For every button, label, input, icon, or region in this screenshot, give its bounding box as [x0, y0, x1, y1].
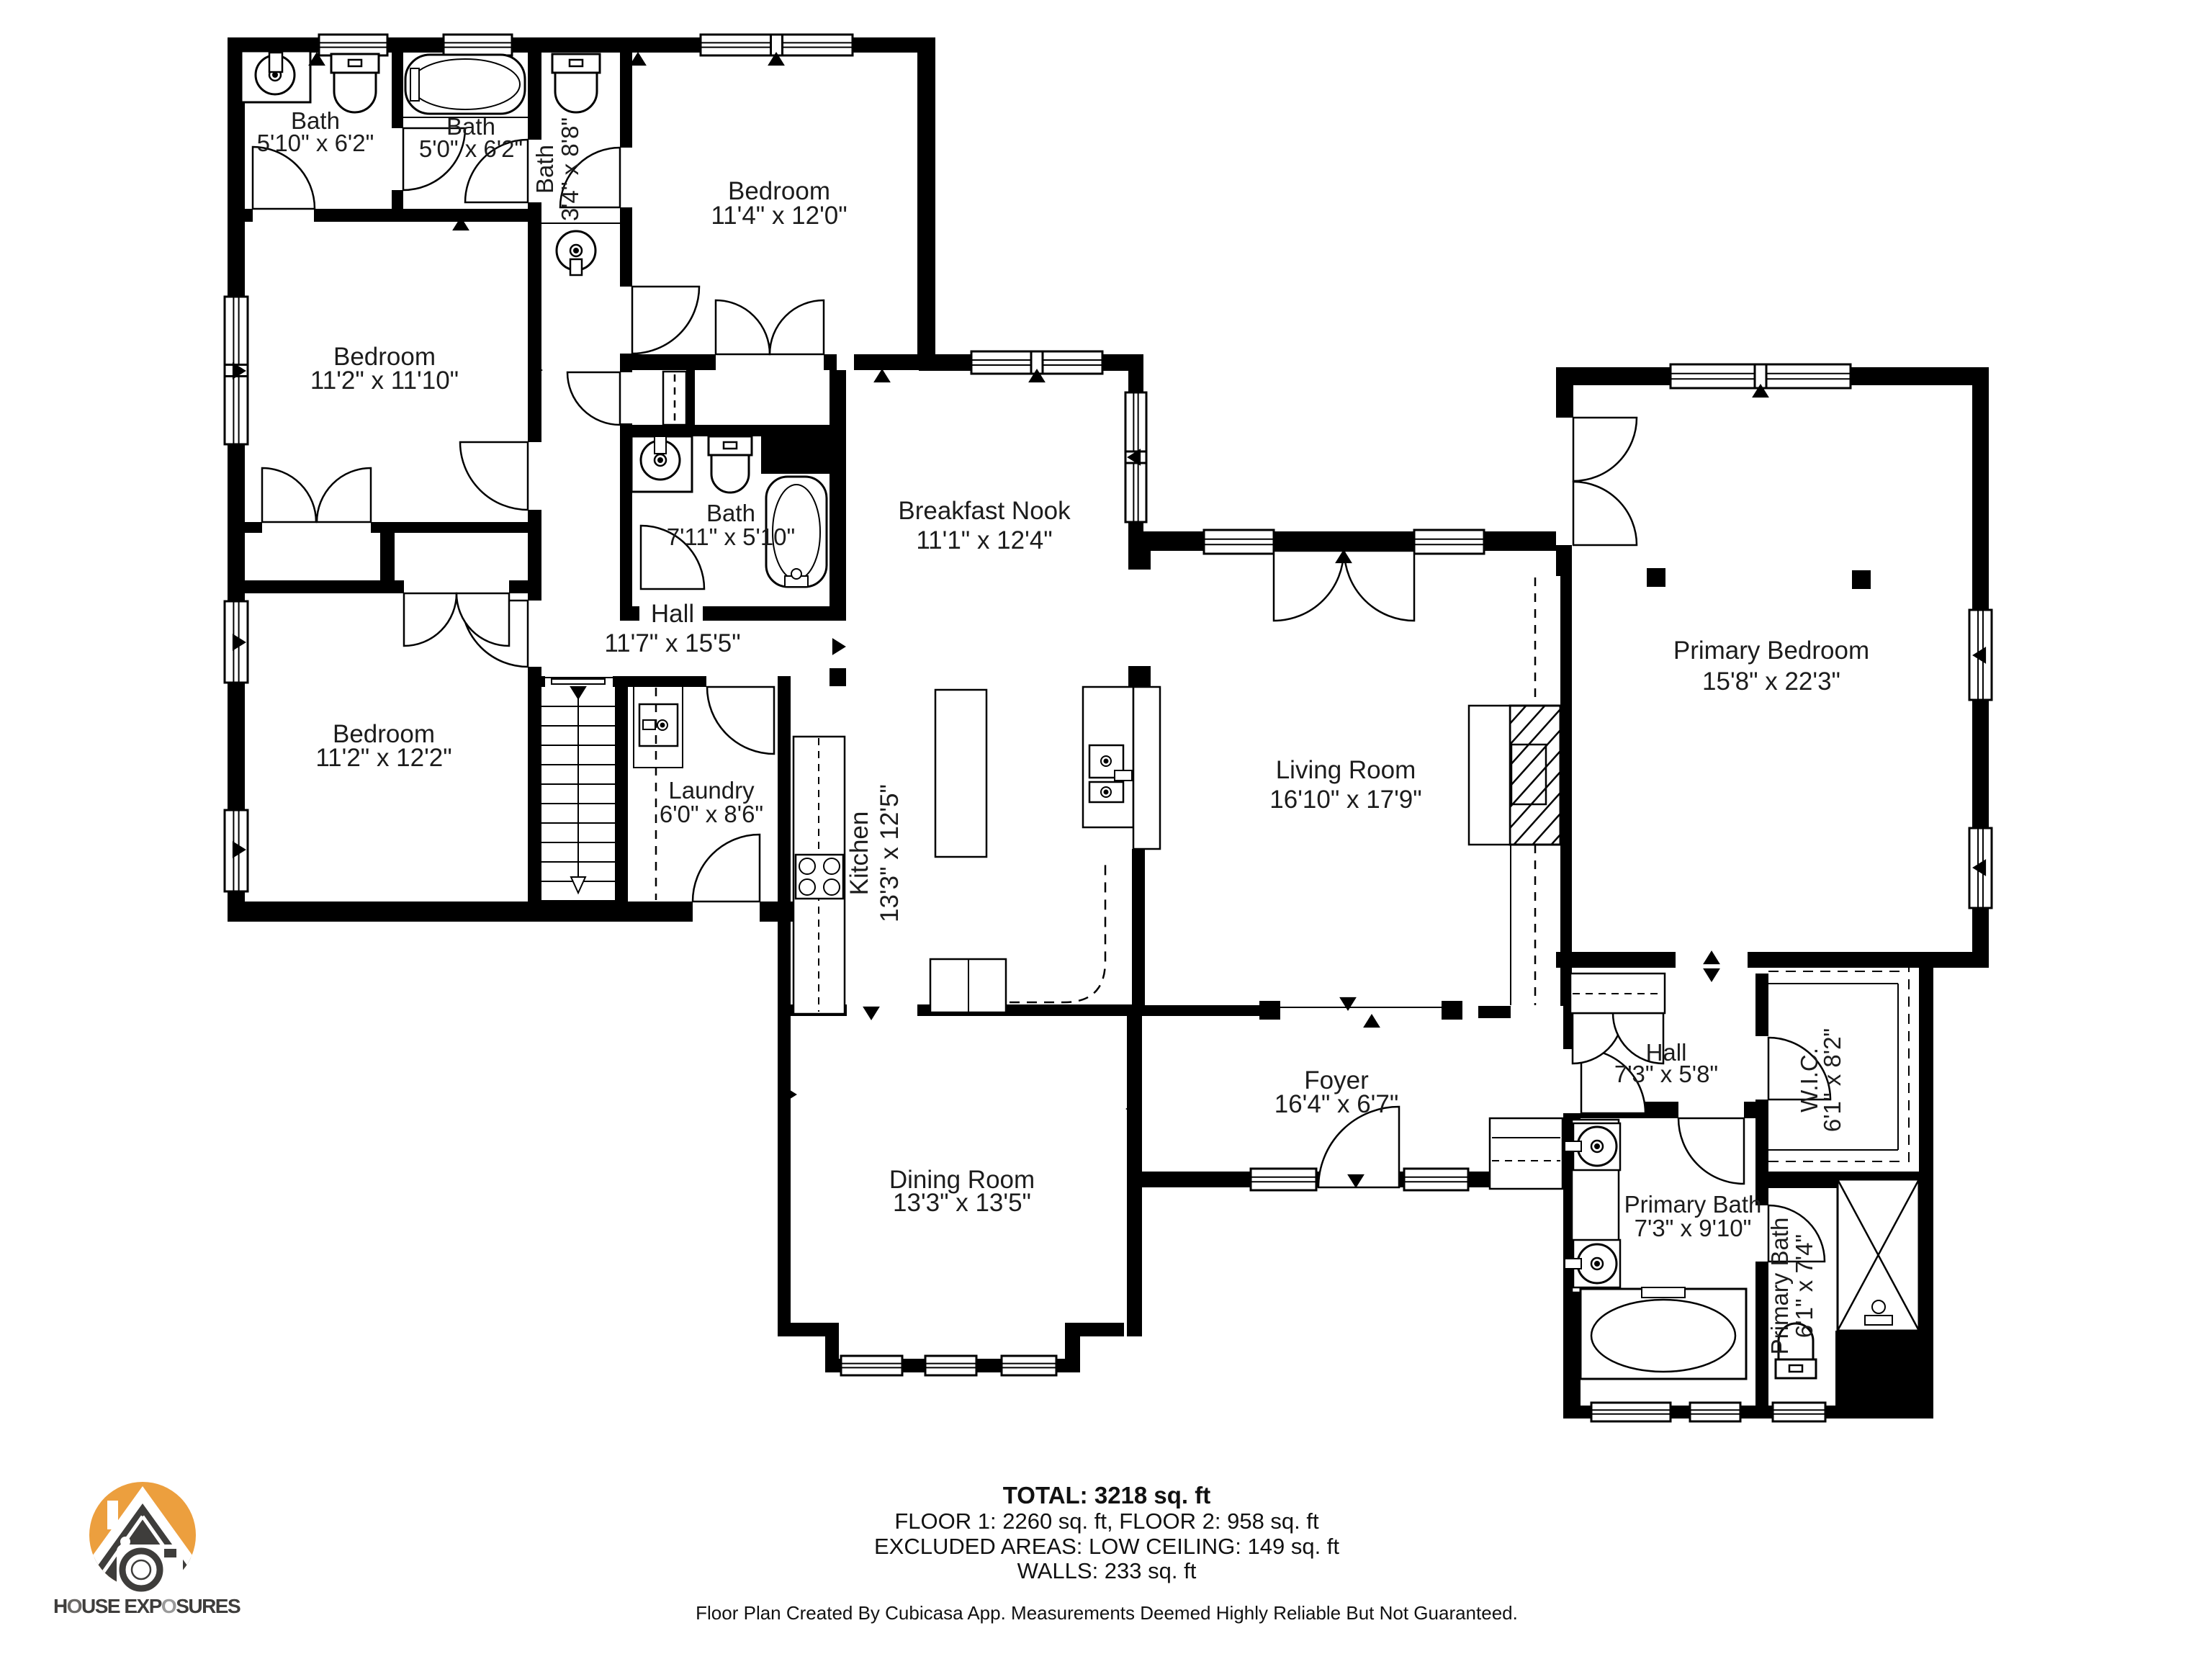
svg-text:Primary Bath: Primary Bath — [1624, 1191, 1762, 1218]
svg-text:Breakfast Nook: Breakfast Nook — [898, 497, 1071, 525]
svg-text:FLOOR 1: 2260 sq. ft, FLOOR 2:: FLOOR 1: 2260 sq. ft, FLOOR 2: 958 sq. f… — [894, 1509, 1319, 1534]
svg-text:11'4" x 12'0": 11'4" x 12'0" — [711, 202, 847, 230]
svg-text:13'3" x 13'5": 13'3" x 13'5" — [893, 1189, 1031, 1217]
svg-text:11'2" x 12'2": 11'2" x 12'2" — [315, 744, 451, 772]
svg-text:HOUSE EXPOSURES: HOUSE EXPOSURES — [53, 1595, 240, 1617]
svg-text:5'0" x 6'2": 5'0" x 6'2" — [419, 135, 523, 162]
svg-text:Floor Plan Created By Cubicasa: Floor Plan Created By Cubicasa App. Meas… — [696, 1602, 1518, 1624]
svg-text:15'8" x 22'3": 15'8" x 22'3" — [1702, 667, 1840, 696]
svg-text:7'3" x 9'10": 7'3" x 9'10" — [1635, 1215, 1752, 1241]
svg-text:11'2" x 11'10": 11'2" x 11'10" — [310, 367, 459, 395]
svg-text:7'11" x 5'10": 7'11" x 5'10" — [667, 523, 796, 550]
svg-text:Primary Bath: Primary Bath — [1766, 1218, 1793, 1355]
svg-text:11'7" x 15'5": 11'7" x 15'5" — [604, 629, 740, 657]
svg-text:16'10" x 17'9": 16'10" x 17'9" — [1269, 786, 1421, 814]
svg-text:6'1" x 7'4": 6'1" x 7'4" — [1791, 1234, 1817, 1338]
svg-text:6'0" x 8'6": 6'0" x 8'6" — [660, 801, 763, 827]
svg-text:Bath: Bath — [706, 500, 755, 526]
svg-text:7'3" x 5'8": 7'3" x 5'8" — [1614, 1061, 1718, 1087]
svg-text:Hall: Hall — [651, 600, 694, 628]
svg-text:WALLS: 233 sq. ft: WALLS: 233 sq. ft — [1017, 1558, 1197, 1583]
svg-text:Primary Bedroom: Primary Bedroom — [1673, 637, 1869, 665]
svg-text:11'1" x 12'4": 11'1" x 12'4" — [916, 526, 1052, 554]
svg-text:6'1" x 8'2": 6'1" x 8'2" — [1819, 1028, 1845, 1132]
svg-text:EXCLUDED AREAS: LOW CEILING: 1: EXCLUDED AREAS: LOW CEILING: 149 sq. ft — [874, 1534, 1339, 1559]
svg-text:Bath: Bath — [531, 145, 558, 194]
svg-text:16'4" x 6'7": 16'4" x 6'7" — [1274, 1090, 1399, 1118]
svg-text:13'3" x 12'5": 13'3" x 12'5" — [876, 784, 904, 922]
svg-text:Laundry: Laundry — [668, 777, 755, 804]
svg-text:5'10" x 6'2": 5'10" x 6'2" — [257, 130, 374, 156]
svg-text:Kitchen: Kitchen — [845, 811, 873, 896]
svg-text:3'4" x 8'8": 3'4" x 8'8" — [557, 117, 583, 221]
svg-text:Living Room: Living Room — [1276, 756, 1416, 784]
svg-text:TOTAL: 3218 sq. ft: TOTAL: 3218 sq. ft — [1003, 1482, 1211, 1509]
